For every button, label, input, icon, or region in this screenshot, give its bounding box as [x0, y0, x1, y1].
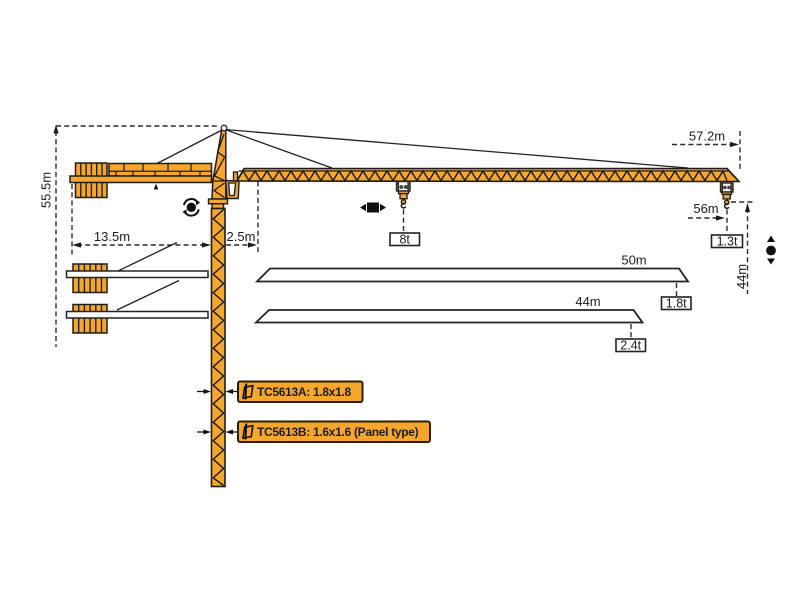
svg-text:55.5m: 55.5m — [39, 172, 54, 208]
svg-text:8t: 8t — [399, 233, 410, 247]
svg-text:44m: 44m — [734, 264, 749, 289]
svg-text:1.8t: 1.8t — [666, 297, 687, 311]
svg-text:2.5m: 2.5m — [227, 229, 256, 244]
svg-text:TC5613B: 1.6x1.6 (Panel type: TC5613B: 1.6x1.6 (Panel type) — [257, 425, 419, 439]
svg-text:56m: 56m — [693, 201, 718, 216]
svg-text:TC5613A: 1.8x1.8: TC5613A: 1.8x1.8 — [257, 385, 352, 399]
svg-text:44m: 44m — [575, 294, 600, 309]
svg-text:1.3t: 1.3t — [717, 235, 738, 249]
svg-text:50m: 50m — [621, 253, 646, 268]
svg-text:13.5m: 13.5m — [94, 229, 130, 244]
svg-text:2.4t: 2.4t — [620, 339, 641, 353]
svg-text:57.2m: 57.2m — [689, 129, 725, 144]
